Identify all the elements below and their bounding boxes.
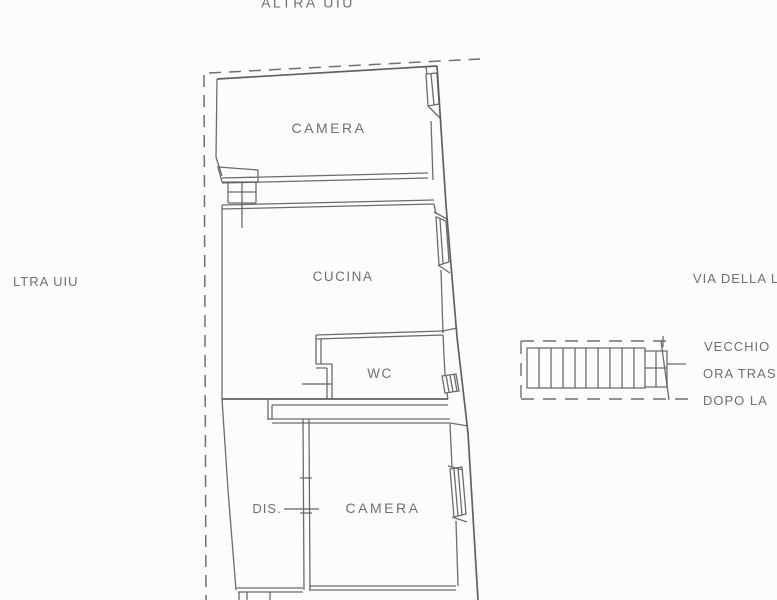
boundary-line-left: [204, 75, 206, 600]
label-boundary-left: LTRA UIU: [13, 274, 79, 289]
exterior-wall-right: [437, 66, 478, 600]
wall-top: [222, 200, 434, 209]
lower-rooms-top-wall: [268, 419, 450, 423]
wall-right-inner: [434, 204, 443, 333]
label-stair-note-3: DOPO LA: [703, 393, 768, 408]
cutoff-wall-stubs: [239, 592, 270, 600]
floor-plan-drawing: ALTRA UIU LTRA UIU VIA DELLA L CAMERA CU…: [0, 0, 777, 600]
door-jambs: [300, 478, 312, 513]
camera-bottom-wall: [309, 586, 456, 590]
window: [448, 466, 467, 522]
rooms-dis-camera: [222, 399, 467, 600]
label-stair-note-2: ORA TRAS: [703, 366, 777, 381]
staircase: [521, 336, 688, 400]
outer-wall-line: [437, 66, 478, 600]
label-room-wc: WC: [367, 366, 393, 381]
wall-left: [222, 399, 236, 590]
boundary-dashed-lines: [204, 59, 480, 600]
window: [442, 374, 459, 393]
stair-treads: [539, 348, 634, 388]
label-room-dis: DIS.: [252, 501, 281, 516]
wall-top: [217, 66, 437, 79]
wall-left-lower: [327, 364, 332, 399]
label-boundary-top: ALTRA UIU: [261, 0, 355, 11]
vestibule: [218, 167, 258, 228]
label-street: VIA DELLA L: [693, 271, 777, 286]
wall-top: [316, 331, 443, 339]
floor-step: [268, 399, 450, 423]
floor-plan-canvas: ALTRA UIU LTRA UIU VIA DELLA L CAMERA CU…: [0, 0, 777, 600]
label-room-camera-top: CAMERA: [292, 120, 367, 136]
stair-wall-junction: [661, 336, 686, 400]
room-cucina: [222, 200, 450, 399]
label-room-camera-bottom: CAMERA: [346, 500, 421, 516]
vestibule-upper: [218, 167, 258, 182]
step-vertical: [268, 399, 272, 420]
wall-left: [216, 79, 222, 176]
label-stair-note-1: VECCHIO: [704, 339, 770, 354]
labels: ALTRA UIU LTRA UIU VIA DELLA L CAMERA CU…: [13, 0, 777, 516]
label-room-cucina: CUCINA: [313, 269, 374, 284]
staircase-dashed-outline: [521, 341, 688, 399]
wall-step: [316, 364, 332, 368]
dis-bottom-wall: [236, 588, 303, 592]
divider-wall: [303, 419, 310, 590]
room-wc: [302, 331, 459, 399]
